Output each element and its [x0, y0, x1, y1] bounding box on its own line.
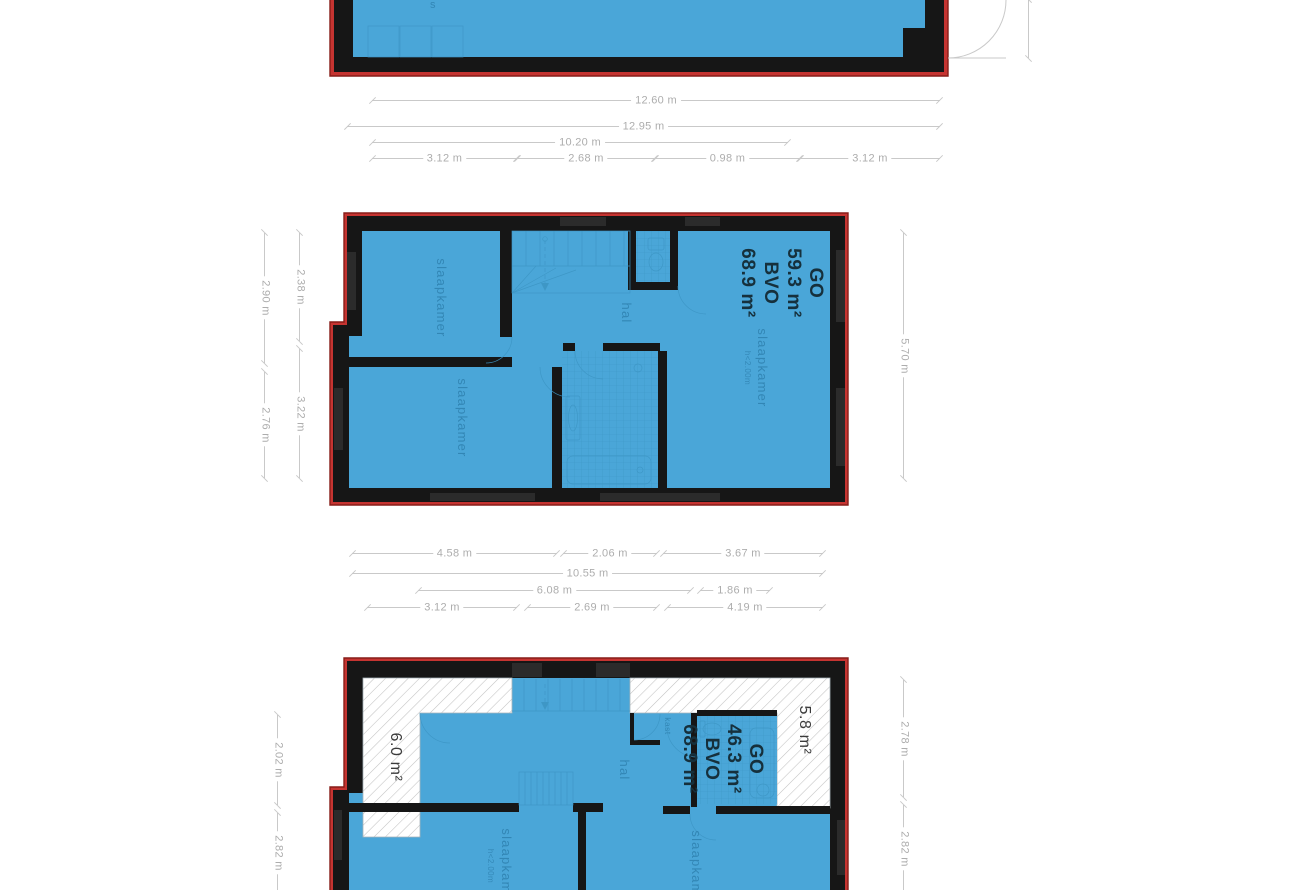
dim-label: 10.20 m [555, 137, 605, 150]
room-label-bedroom-left: slaapkamer [499, 828, 514, 890]
dimension-3-22: 3.22 m [299, 349, 300, 478]
bathroom-tiled-floor [562, 351, 658, 488]
toilet-tiled-floor [636, 231, 670, 282]
dimension-4-58: 4.58 m [352, 553, 557, 554]
dim-label: 12.95 m [619, 121, 669, 134]
dimension-top-right-partial [1028, 0, 1029, 58]
dimension-3-12-a: 3.12 m [372, 158, 517, 159]
zone-label-right: 5.8 m² [796, 706, 813, 755]
dimension-2-02: 2.02 m [277, 715, 278, 805]
dim-label: 3.12 m [848, 153, 891, 166]
wall-corner-step [903, 28, 925, 57]
area-label-go-value: 46.3 m² [723, 724, 744, 794]
room-label-hall: hal [617, 760, 632, 781]
room-label-bedroom-top-left: slaapkamer [434, 258, 449, 337]
entry-door-swing-arc [948, 0, 1006, 58]
dimension-5-70: 5.70 m [903, 233, 904, 478]
dim-label: 2.90 m [259, 276, 272, 319]
room-note-bedroom-right: h<2.00m [743, 351, 752, 385]
bottom-floor-plan: 6.0 m² 5.8 m² hal kast slaapkamer h<2.00… [325, 653, 860, 890]
dimension-2-68: 2.68 m [517, 158, 655, 159]
dimension-3-12-b: 3.12 m [800, 158, 940, 159]
area-label-go: GO [745, 744, 766, 775]
dimension-0-98: 0.98 m [655, 158, 800, 159]
area-label-bvo-value: 68.9 m² [679, 724, 700, 794]
room-label-bedroom-bottom-left: slaapkamer [455, 378, 470, 457]
room-label-bedroom-right: slaapkamer [689, 830, 704, 890]
dimension-2-76: 2.76 m [264, 372, 265, 478]
dim-label: 2.82 m [272, 831, 285, 874]
dim-label: 3.67 m [721, 548, 764, 561]
dim-label: 4.58 m [433, 548, 476, 561]
dimension-2-38: 2.38 m [299, 233, 300, 341]
dim-label: 3.22 m [294, 392, 307, 435]
dimension-6-08: 6.08 m [418, 590, 691, 591]
dimension-12-60: 12.60 m [372, 100, 940, 101]
dim-label: 2.06 m [588, 548, 631, 561]
dim-label: 10.55 m [563, 568, 613, 581]
dimension-10-55: 10.55 m [352, 573, 823, 574]
dim-label: 2.02 m [272, 738, 285, 781]
dimension-4-19: 4.19 m [667, 607, 823, 608]
area-label-bvo: BVO [760, 262, 781, 305]
middle-floor-plan: slaapkamer slaapkamer hal slaapkamer h<2… [325, 208, 860, 510]
top-plan-shell [330, 0, 948, 76]
dimension-2-69: 2.69 m [527, 607, 657, 608]
dimension-2-06: 2.06 m [563, 553, 657, 554]
dim-label: 3.12 m [420, 602, 463, 615]
area-label-go: GO [805, 268, 826, 299]
dim-label: 2.78 m [898, 717, 911, 760]
dim-label: 2.76 m [259, 403, 272, 446]
dim-label: 12.60 m [631, 95, 681, 108]
zone-label-left: 6.0 m² [387, 733, 404, 782]
dimension-12-95: 12.95 m [347, 126, 940, 127]
dim-label: 4.19 m [723, 602, 766, 615]
dimension-1-86: 1.86 m [700, 590, 770, 591]
dim-label: 5.70 m [898, 334, 911, 377]
dim-label: 3.12 m [423, 153, 466, 166]
room-note-bedroom-left: h<2.00m [486, 849, 495, 883]
area-label-bvo-value: 68.9 m² [737, 248, 758, 318]
dimension-3-12-c: 3.12 m [367, 607, 517, 608]
dim-label: 2.69 m [570, 602, 613, 615]
dim-label: 2.82 m [898, 827, 911, 870]
dim-label: 6.08 m [533, 585, 576, 598]
top-floor-plan: s [325, 0, 1040, 80]
room-label-hall: hal [619, 303, 634, 324]
room-label-bedroom-right: slaapkamer [755, 328, 770, 407]
dimension-3-67: 3.67 m [663, 553, 823, 554]
dimension-2-82-right: 2.82 m [903, 805, 904, 890]
dim-label: 2.68 m [564, 153, 607, 166]
dim-label: 0.98 m [706, 153, 749, 166]
floorplan-canvas: s 12.60 m 12.95 m 10.20 m 3.12 m 2.68 m … [0, 0, 1300, 890]
dim-label: 1.86 m [713, 585, 756, 598]
dimension-10-20: 10.20 m [372, 142, 788, 143]
room-label-closet: kast [663, 717, 673, 735]
area-label-go-value: 59.3 m² [783, 248, 804, 318]
dimension-2-82-left: 2.82 m [277, 813, 278, 890]
dimension-2-90: 2.90 m [264, 233, 265, 363]
dimension-2-78: 2.78 m [903, 680, 904, 797]
dim-label: 2.38 m [294, 265, 307, 308]
area-label-bvo: BVO [701, 738, 722, 781]
cut-label-fragment: s [430, 0, 436, 11]
